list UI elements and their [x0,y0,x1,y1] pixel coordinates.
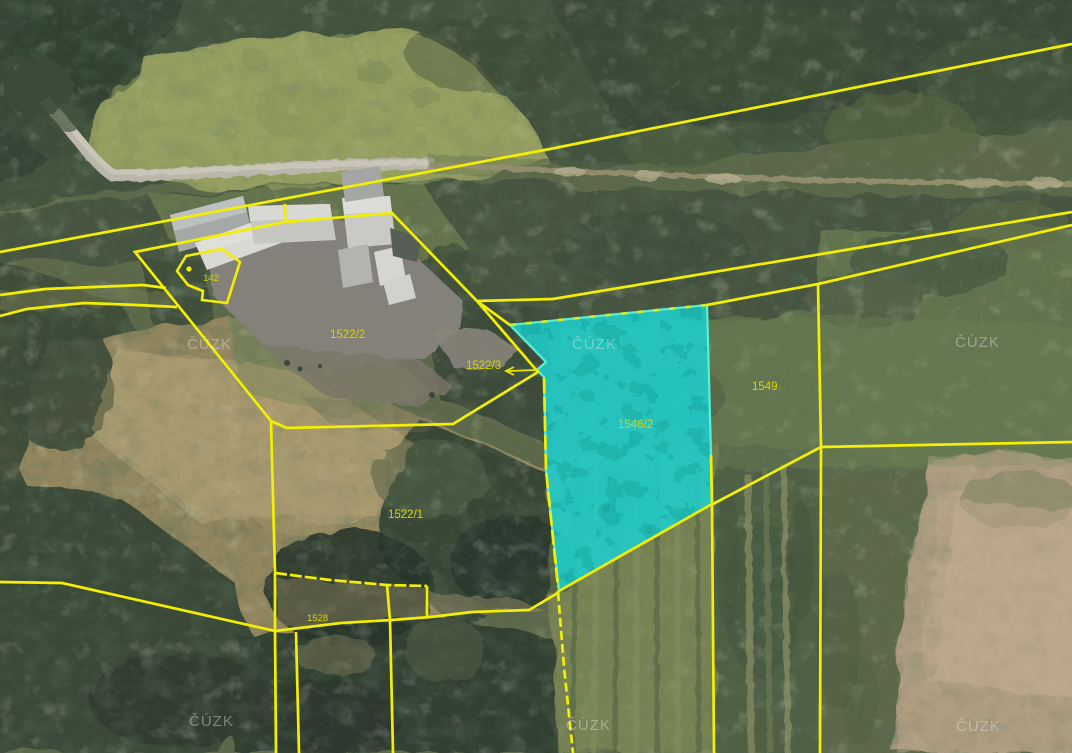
svg-text:ČÚZK: ČÚZK [572,336,617,353]
svg-text:ČÚZK: ČÚZK [187,336,232,353]
svg-text:142: 142 [203,273,219,284]
svg-text:ČÚZK: ČÚZK [189,713,234,730]
svg-text:1522/3: 1522/3 [466,360,501,372]
svg-text:ČÚZK: ČÚZK [566,717,611,734]
svg-text:1522/1: 1522/1 [388,509,423,521]
svg-text:1549: 1549 [752,381,778,393]
svg-text:ČÚZK: ČÚZK [955,334,1000,351]
svg-text:1546/2: 1546/2 [618,419,653,431]
svg-text:ČÚZK: ČÚZK [956,718,1001,735]
svg-text:1522/2: 1522/2 [330,329,365,341]
svg-text:1528: 1528 [307,613,328,624]
